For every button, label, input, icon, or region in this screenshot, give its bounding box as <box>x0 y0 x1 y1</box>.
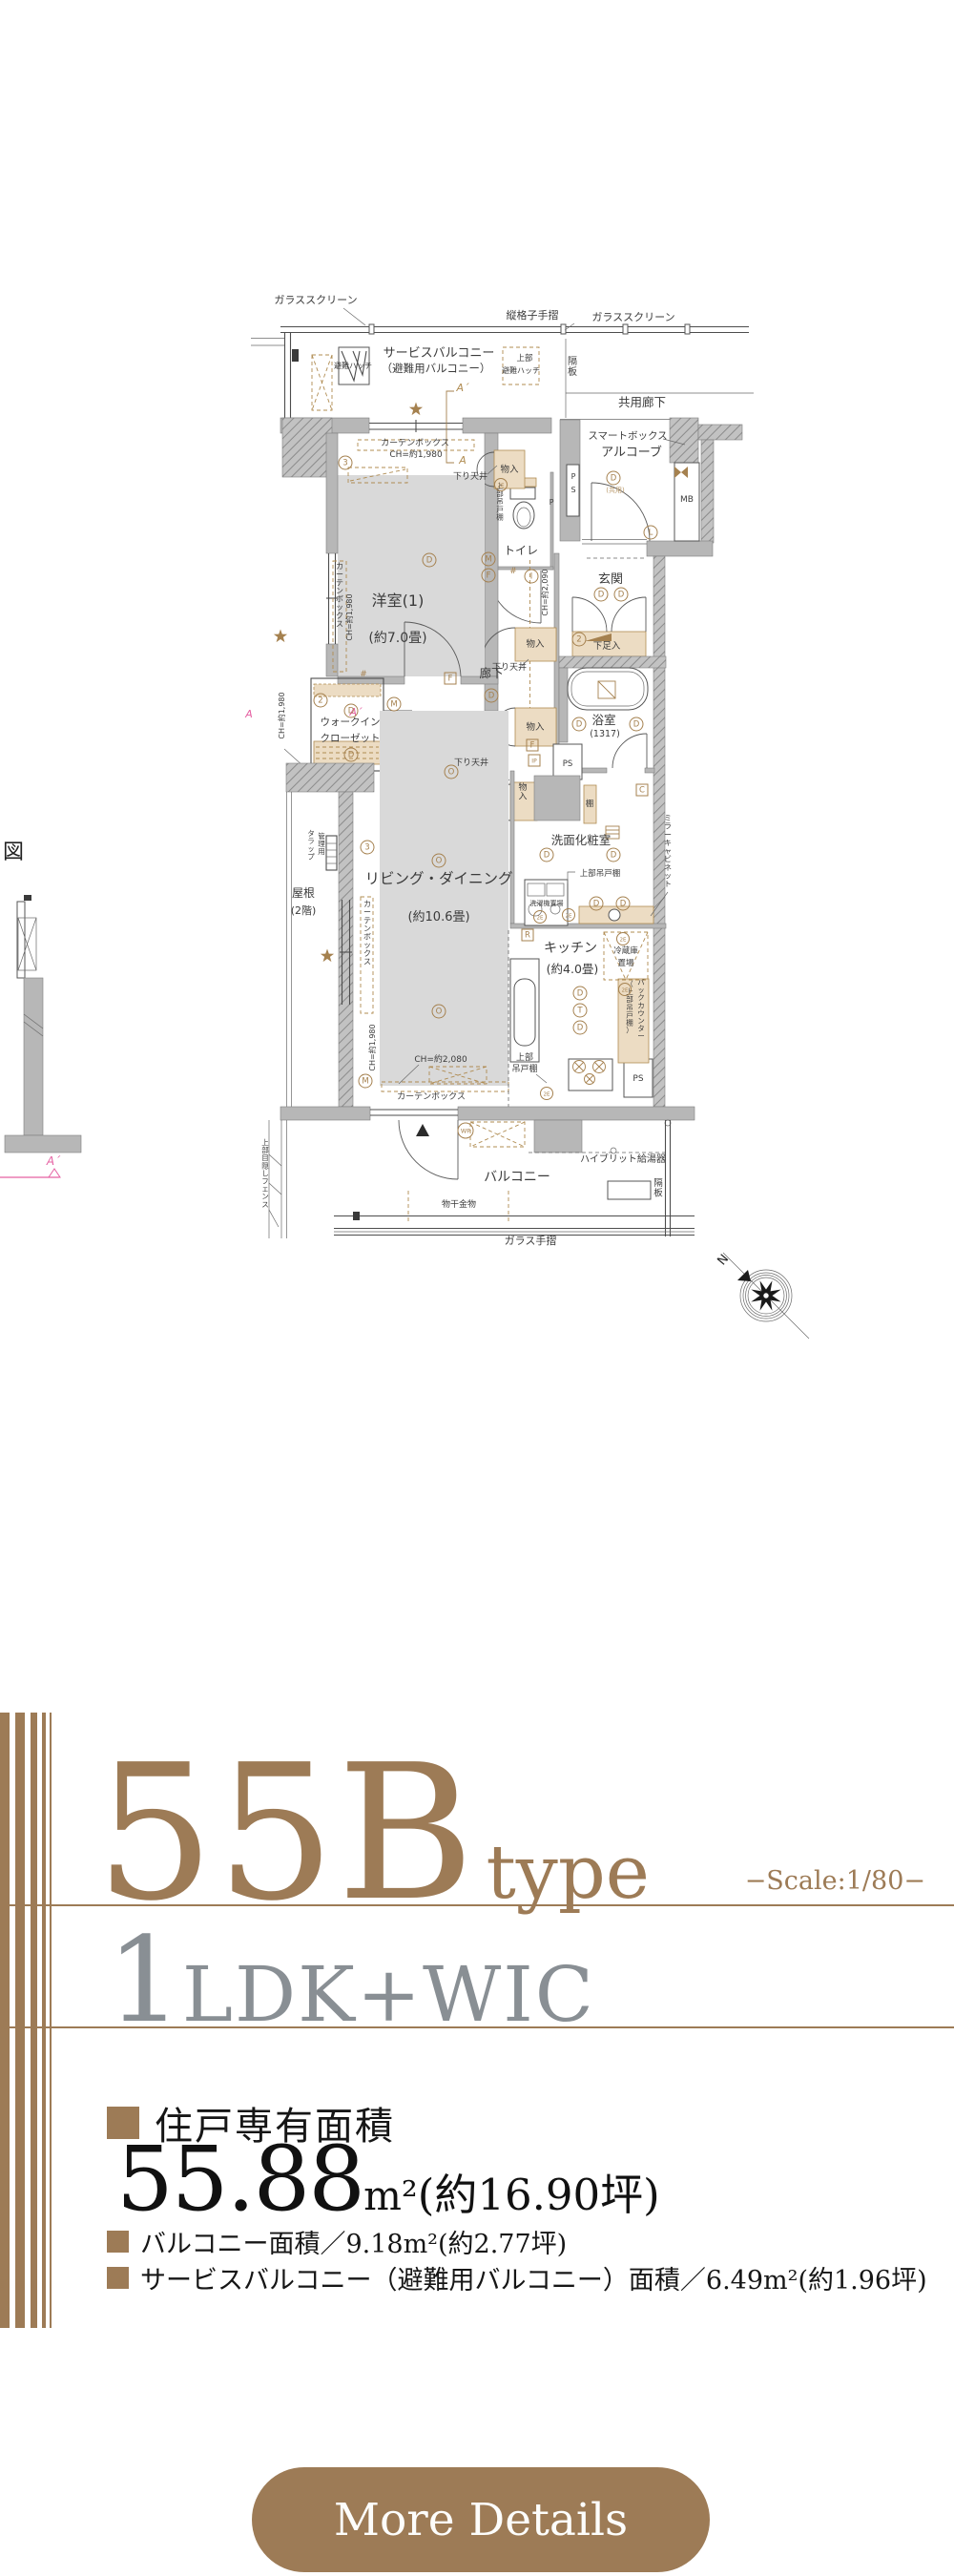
plan-label: 避難ハッチ <box>334 361 372 370</box>
plan-symbol-label: T <box>576 1007 583 1016</box>
plan-label: 上部目隠しフェンス <box>261 1138 269 1209</box>
plan-label: 下足入 <box>593 641 621 652</box>
bullet-square-icon <box>107 2267 129 2289</box>
plan-symbol-label: D <box>544 851 550 861</box>
plan-label: PS <box>633 1074 643 1084</box>
plan-label: クローゼット <box>321 733 381 744</box>
plan-label: 物入 <box>500 464 519 475</box>
plan-symbol-label: D <box>348 707 355 717</box>
plan-symbol-label: M <box>362 1077 368 1087</box>
plan-symbol-label: D <box>620 900 627 909</box>
plan-symbol-label: D <box>618 591 625 600</box>
plan-symbol-label: D <box>488 692 495 701</box>
alcove-area <box>560 418 742 1107</box>
plan-label: リビング・ダイニング <box>364 870 512 887</box>
area-unit: m² <box>363 2172 418 2219</box>
plan-symbol-label: M <box>390 700 397 710</box>
plan-label: S <box>570 486 575 494</box>
plan-label: 冷蔵庫 <box>613 945 638 956</box>
plan-symbol-label: 3 <box>342 459 347 468</box>
star-icon <box>321 949 334 963</box>
plan-label: (共用) <box>606 486 625 494</box>
plan-label: ミラーキャビネット <box>664 814 672 888</box>
area-tsubo: (約16.90坪) <box>418 2170 660 2220</box>
plan-label: 物干金物 <box>442 1198 476 1210</box>
plan-label: 浴室 <box>591 713 615 727</box>
type-suffix: type <box>486 1830 650 1916</box>
plan-symbol-label: L <box>649 529 653 538</box>
plan-label: カーテンボックス <box>381 438 449 448</box>
plan-symbol-label: D <box>598 591 605 600</box>
plan-label: 屋根 <box>292 886 315 900</box>
decorative-stripes <box>0 1713 53 2328</box>
compass <box>723 1253 809 1339</box>
plan-label: （避難用バルコニー） <box>382 362 491 375</box>
plan-label: CH=約1,980 <box>389 448 443 460</box>
plan-label: 図 <box>3 841 24 864</box>
bullet-square-icon <box>107 2231 129 2253</box>
plan-symbol-label: D <box>348 751 355 760</box>
plan-symbol-label: D <box>577 1024 584 1033</box>
plan-type-title: 55Btype <box>95 1740 650 1927</box>
plan-label: CH=約1,980 <box>344 593 354 640</box>
plan-symbol-label: O <box>448 768 455 778</box>
plan-label: バルコニー <box>484 1170 550 1185</box>
plan-symbol-label: 2E <box>566 914 572 920</box>
plan-label: P <box>550 498 554 507</box>
plan-label: A <box>458 454 467 467</box>
plan-label: アルコーブ <box>601 445 662 460</box>
plan-symbol-label: D <box>611 474 617 484</box>
layout-count: 1 <box>107 1912 182 2049</box>
plan-label: 棚 <box>586 799 594 809</box>
plan-label: A´ <box>455 382 469 394</box>
plan-symbol-label: D <box>593 900 600 909</box>
plan-symbol-label: F <box>448 675 453 684</box>
plan-label: 隔板 <box>568 356 577 378</box>
top-railing <box>251 308 749 418</box>
plan-label: (約4.0畳) <box>547 962 599 976</box>
plan-label: キッチン <box>544 941 597 956</box>
balcony <box>269 1107 695 1238</box>
area-main: 55.88m²(約16.90坪) <box>116 2135 660 2225</box>
plan-symbol-label: D <box>611 851 617 861</box>
plan-label: ガラススクリーン <box>591 311 674 323</box>
plan-symbol-label: D <box>426 556 433 566</box>
plan-label: 置場 <box>617 958 634 968</box>
plan-symbol-label: D <box>576 720 583 730</box>
plan-symbol-label: 3 <box>364 843 369 853</box>
plan-label: カーテンボックス <box>397 1091 466 1102</box>
plan-label: 上部 <box>516 1051 533 1063</box>
balcony-area-label: バルコニー面積／9.18m²(約2.77坪) <box>140 2223 567 2260</box>
plan-symbol-label: O <box>436 1008 443 1017</box>
plan-symbol-label: M <box>485 555 491 565</box>
more-details-button[interactable]: More Details <box>252 2467 710 2572</box>
plan-symbol-label: 2 <box>318 696 322 706</box>
plan-label: 物入 <box>526 638 545 650</box>
service-balcony-area-row: サービスバルコニー（避難用バルコニー）面積／6.49m²(約1.96坪) <box>107 2259 927 2296</box>
plan-label: 管理用 <box>318 831 325 856</box>
plan-symbol-label: 2E <box>498 484 505 489</box>
plan-label: # <box>360 670 367 679</box>
divider-rule <box>8 2026 954 2028</box>
plan-symbol-label: F <box>530 741 535 751</box>
plan-label: バックカウンター <box>637 978 645 1041</box>
plan-label: 上部 <box>516 353 533 364</box>
plan-symbol-label: D <box>633 720 640 730</box>
plan-label: N <box>715 1252 732 1268</box>
more-details-label: More Details <box>334 2494 628 2546</box>
plan-label: タラップ <box>307 829 315 861</box>
plan-symbol-label: O <box>436 857 443 866</box>
plan-label: A´ <box>46 1154 61 1168</box>
plan-label: ガラススクリーン <box>274 294 357 306</box>
plan-label: サービスバルコニー <box>384 346 495 361</box>
plan-symbol-label: F <box>487 571 491 581</box>
plan-label: CH=約1,980 <box>277 692 286 738</box>
plan-label: 玄関 <box>598 572 623 587</box>
type-name: 55B <box>95 1725 476 1942</box>
plan-label: 洗面化粧室 <box>551 833 612 847</box>
plan-label: ガラス手摺 <box>505 1234 557 1247</box>
plan-label: (約7.0畳) <box>368 631 426 646</box>
plan-label: 物入 <box>526 721 545 733</box>
plan-symbol-label: 2E <box>620 938 627 944</box>
plan-label: A <box>244 708 253 720</box>
plan-label: CH=約1,980 <box>367 1024 377 1070</box>
plan-symbol-label: 2E <box>537 916 544 922</box>
plan-label: CH=約2,090 <box>540 569 550 615</box>
plan-label: (約10.6畳) <box>407 910 469 924</box>
area-value: 55.88 <box>116 2128 363 2232</box>
floor-plan: ガラススクリーン縦格子手摺ガラススクリーンサービスバルコニー（避難用バルコニー）… <box>124 153 849 1374</box>
plan-label: 下り天井 <box>453 470 487 482</box>
balcony-area-row: バルコニー面積／9.18m²(約2.77坪) <box>107 2223 567 2260</box>
plan-symbol-label: R <box>525 931 530 941</box>
plan-label: 洗濯機置場 <box>530 899 564 907</box>
plan-label: カーテンボックス <box>363 900 371 966</box>
plan-label: トイレ <box>504 544 538 557</box>
plan-label: ハイブリット給湯器 <box>580 1153 666 1165</box>
plan-symbol-label: I <box>530 572 533 582</box>
plan-symbol-label: D <box>577 989 584 999</box>
plan-label: 避難ハッチ <box>502 365 540 375</box>
plan-label: 縦格子手摺 <box>507 308 559 322</box>
plan-symbol-label: C <box>639 786 645 796</box>
plan-label: (1317) <box>590 729 620 739</box>
plan-symbol-label: WP <box>461 1128 470 1135</box>
divider-rule <box>8 1904 954 1906</box>
plan-symbol-label: IP <box>531 758 537 765</box>
plan-label: CH=約2,080 <box>414 1053 467 1065</box>
star-icon <box>274 630 287 643</box>
plan-label: カーテンボックス <box>336 562 343 628</box>
plan-label: 下り天井 <box>454 757 488 768</box>
section-fragment: 図A´ <box>0 838 91 1210</box>
plan-label: 吊戸棚 <box>511 1063 537 1074</box>
service-balcony-area-label: サービスバルコニー（避難用バルコニー）面積／6.49m²(約1.96坪) <box>140 2259 927 2296</box>
plan-symbol-label: 2E <box>622 988 629 994</box>
plan-symbol-label: 2E <box>544 1092 550 1098</box>
entrance <box>559 597 666 668</box>
plan-label: 廊下 <box>479 666 503 680</box>
plan-symbol-label: 2 <box>576 635 581 645</box>
plan-label: # <box>509 567 517 576</box>
service-balcony <box>312 339 754 418</box>
plan-label: 物入 <box>518 781 527 802</box>
plan-label: 洋室(1) <box>372 592 425 610</box>
scale-note: −Scale:1/80− <box>745 1866 925 1896</box>
layout-type: 1LDK+WIC <box>107 1922 595 2040</box>
plan-label: 隔板 <box>653 1178 663 1198</box>
plan-label: MB <box>680 495 694 505</box>
star-icon <box>409 403 423 416</box>
plan-label: (2階) <box>291 904 317 917</box>
plan-label: PS <box>563 759 573 769</box>
plan-label: P <box>571 472 576 481</box>
plan-label: 上部吊戸棚 <box>580 868 621 879</box>
plan-label: 共用廊下 <box>618 395 666 409</box>
plan-label: スマートボックス <box>588 430 667 442</box>
